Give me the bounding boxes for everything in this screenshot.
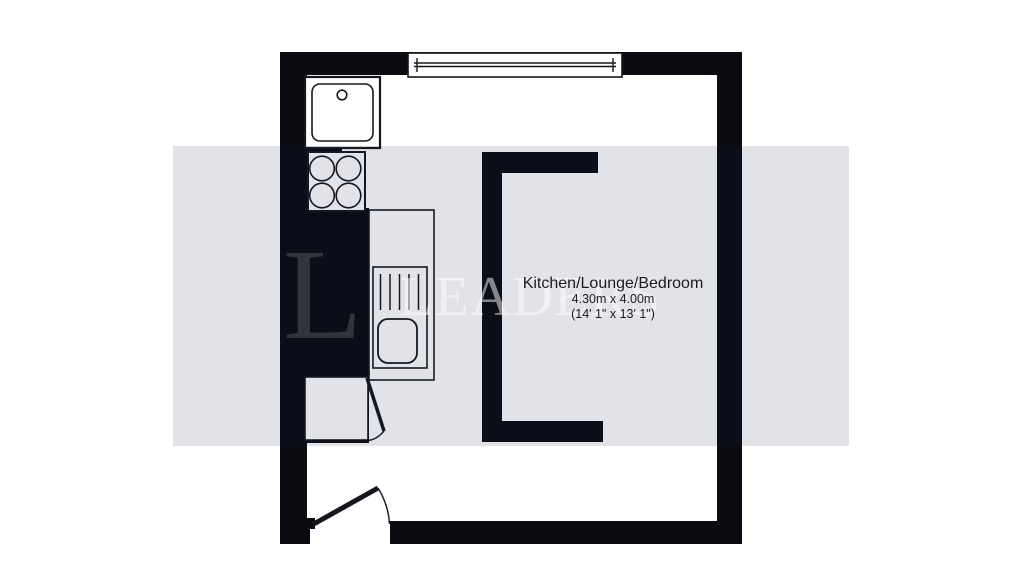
room-name: Kitchen/Lounge/Bedroom	[523, 275, 704, 292]
room-size-metric: 4.30m x 4.00m	[572, 292, 655, 306]
sink-basin	[312, 84, 373, 141]
window	[408, 53, 622, 77]
wall-bottom-right-segment	[390, 521, 742, 544]
wall-bottom-left-segment	[280, 521, 310, 544]
window-frame	[408, 53, 622, 77]
sink	[305, 77, 380, 148]
room-size-imperial: (14' 1" x 13' 1")	[571, 307, 655, 321]
watermark-initial: L	[283, 223, 362, 367]
floorplan-page: L LEADERS Kitchen/Lounge/Bedroom 4.30m x…	[0, 0, 1024, 582]
floor-plan: L LEADERS Kitchen/Lounge/Bedroom 4.30m x…	[0, 0, 1024, 582]
